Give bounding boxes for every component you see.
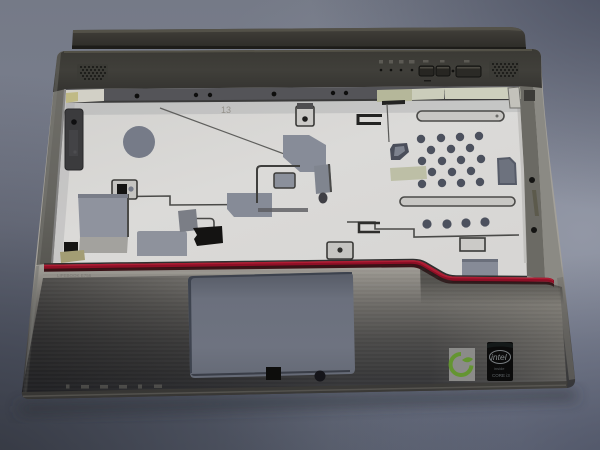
svg-text:inside: inside	[494, 366, 505, 371]
svg-text:intel: intel	[491, 352, 508, 362]
svg-text:CORE i3: CORE i3	[492, 373, 510, 378]
svg-text:13: 13	[221, 105, 231, 115]
svg-text:LIFEBOOK E756: LIFEBOOK E756	[57, 273, 92, 278]
